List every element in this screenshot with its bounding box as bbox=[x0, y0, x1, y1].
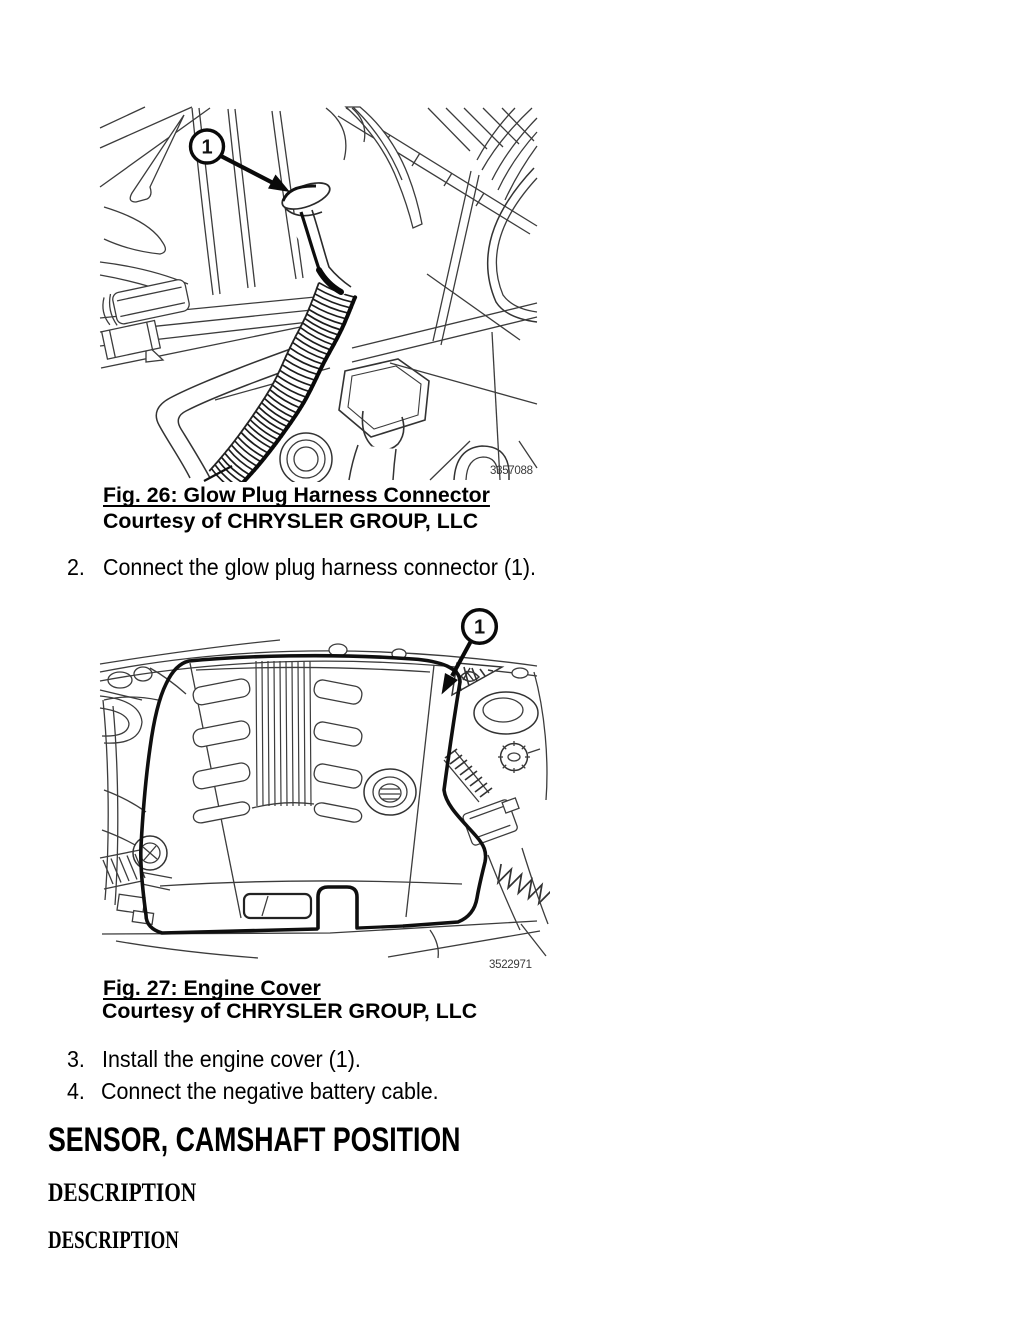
svg-text:1: 1 bbox=[201, 137, 212, 159]
svg-text:3357088: 3357088 bbox=[490, 465, 533, 477]
svg-text:1: 1 bbox=[474, 617, 485, 639]
svg-text:3522971: 3522971 bbox=[489, 959, 532, 970]
